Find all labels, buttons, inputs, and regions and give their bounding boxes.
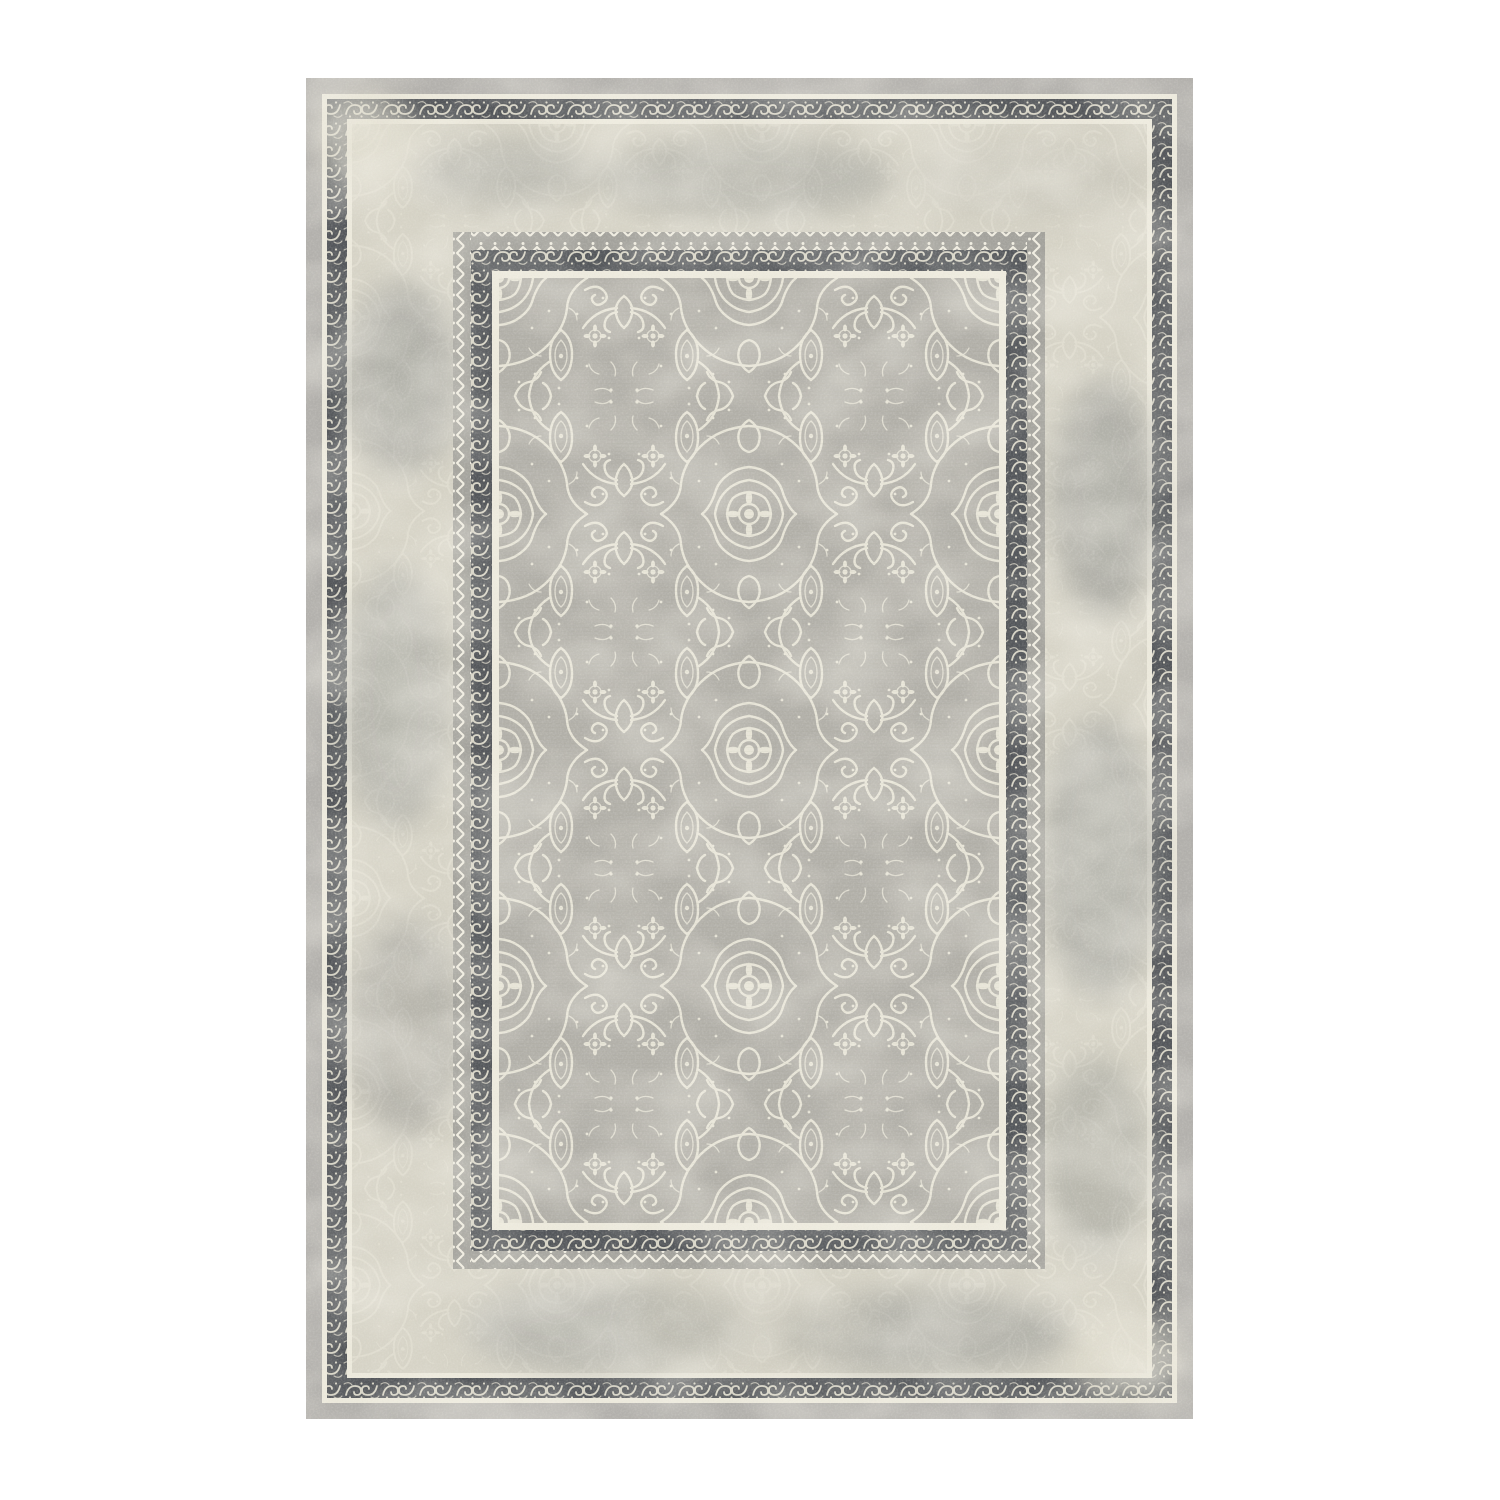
page-background (0, 0, 1500, 1500)
rug-graphic (306, 78, 1193, 1419)
rug-image (306, 78, 1193, 1419)
grain-overlay-dark (306, 78, 1193, 1419)
